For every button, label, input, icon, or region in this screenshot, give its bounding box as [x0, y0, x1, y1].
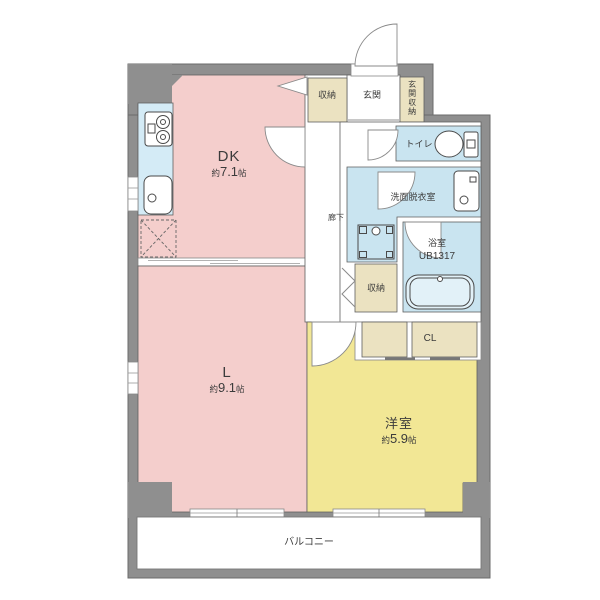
entrance-storage-floor: [400, 77, 424, 122]
kitchen-sink-icon: [144, 176, 172, 214]
wall-notch-right: [463, 482, 490, 518]
bathtub-icon: [406, 275, 474, 309]
floor-plan: DK 約7.1帖 L 約9.1帖 洋室 約5.9帖 収納 玄関 玄関収納 トイレ…: [0, 0, 600, 600]
balcony-floor: [137, 517, 481, 569]
storage-top-floor: [308, 78, 347, 122]
stove-icon: [145, 112, 172, 146]
dk-living-partition: [138, 258, 307, 266]
wall-notch-left: [128, 482, 172, 518]
vanity-sink-icon: [454, 171, 479, 211]
floor-plan-drawing: [0, 0, 600, 600]
living-room-floor: [138, 266, 307, 512]
closet-area: [355, 322, 481, 360]
balcony-window-living: [190, 509, 284, 517]
toilet-icon: [435, 131, 478, 157]
living-side-window: [128, 362, 138, 394]
wall-corner-block: [128, 64, 172, 104]
balcony-window-western: [333, 509, 425, 517]
storage-hall-floor: [355, 264, 397, 312]
kitchen-side-window: [128, 177, 138, 211]
entrance-door-arc: [355, 24, 397, 66]
